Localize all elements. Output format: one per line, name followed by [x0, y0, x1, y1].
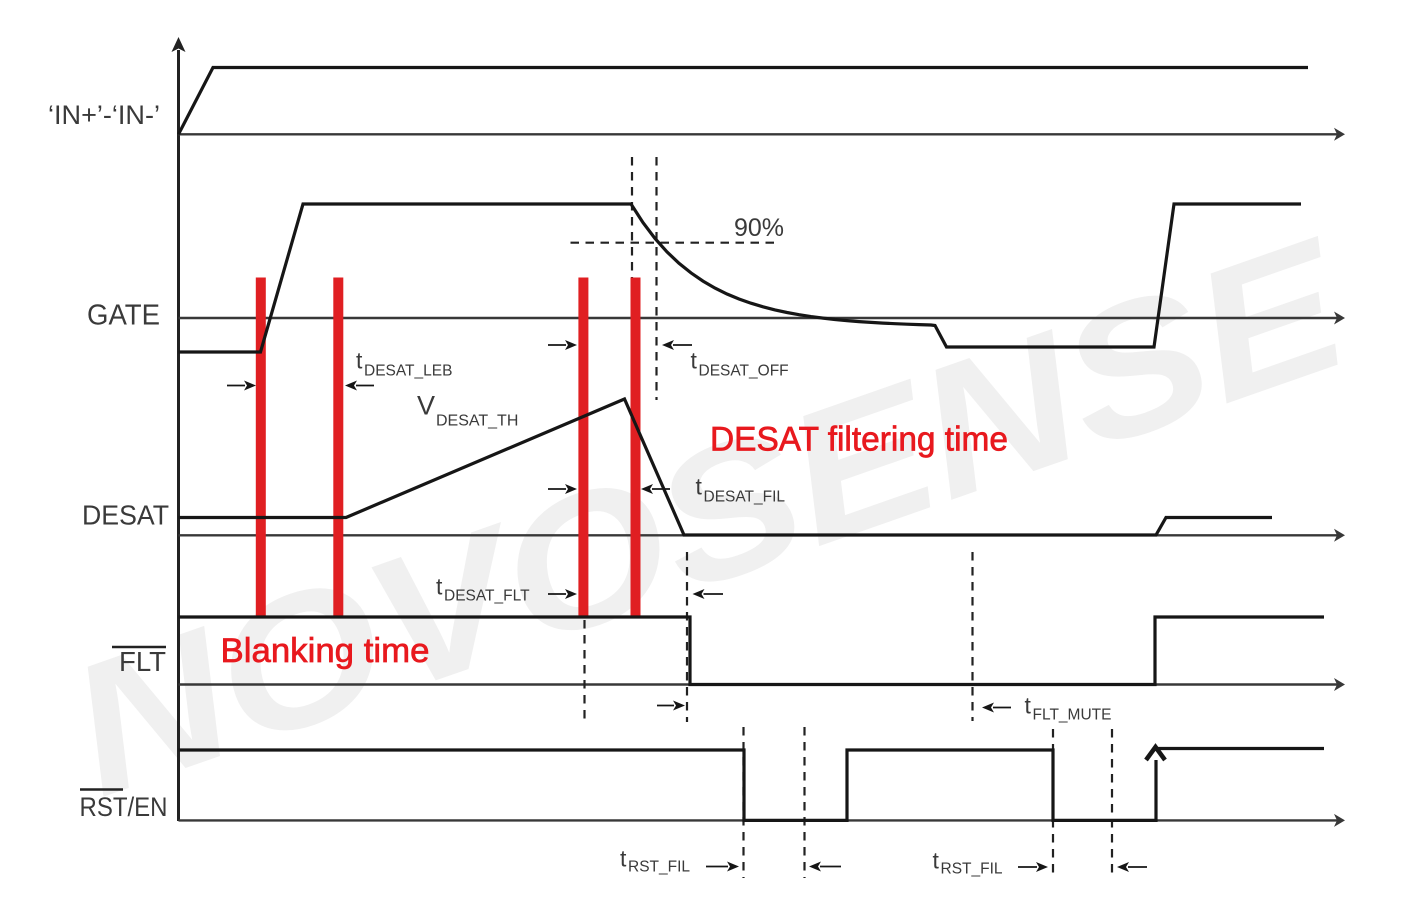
svg-text:RST_FIL: RST_FIL: [628, 859, 690, 876]
svg-text:DESAT filtering time: DESAT filtering time: [710, 421, 1008, 459]
svg-text:RST/EN: RST/EN: [80, 792, 168, 822]
svg-text:‘IN+’-‘IN-’: ‘IN+’-‘IN-’: [48, 100, 160, 130]
svg-text:DESAT_OFF: DESAT_OFF: [699, 363, 789, 380]
svg-text:FLT: FLT: [119, 646, 166, 677]
svg-text:Blanking time: Blanking time: [221, 632, 430, 670]
svg-text:t: t: [691, 348, 698, 374]
svg-text:t: t: [620, 846, 627, 872]
svg-text:GATE: GATE: [87, 300, 160, 332]
svg-text:DESAT_FLT: DESAT_FLT: [444, 588, 530, 605]
svg-text:DESAT_FIL: DESAT_FIL: [704, 489, 786, 506]
svg-text:t: t: [356, 348, 363, 374]
svg-text:V: V: [417, 391, 435, 421]
svg-text:FLT_MUTE: FLT_MUTE: [1033, 707, 1112, 724]
svg-text:t: t: [696, 474, 703, 500]
svg-text:DESAT_LEB: DESAT_LEB: [364, 363, 452, 380]
svg-text:t: t: [436, 574, 443, 600]
svg-text:t: t: [1025, 693, 1032, 719]
svg-text:DESAT_TH: DESAT_TH: [436, 413, 518, 430]
svg-text:RST_FIL: RST_FIL: [941, 861, 1003, 878]
svg-text:DESAT: DESAT: [82, 500, 169, 531]
svg-text:90%: 90%: [734, 214, 784, 242]
svg-text:t: t: [933, 848, 940, 874]
